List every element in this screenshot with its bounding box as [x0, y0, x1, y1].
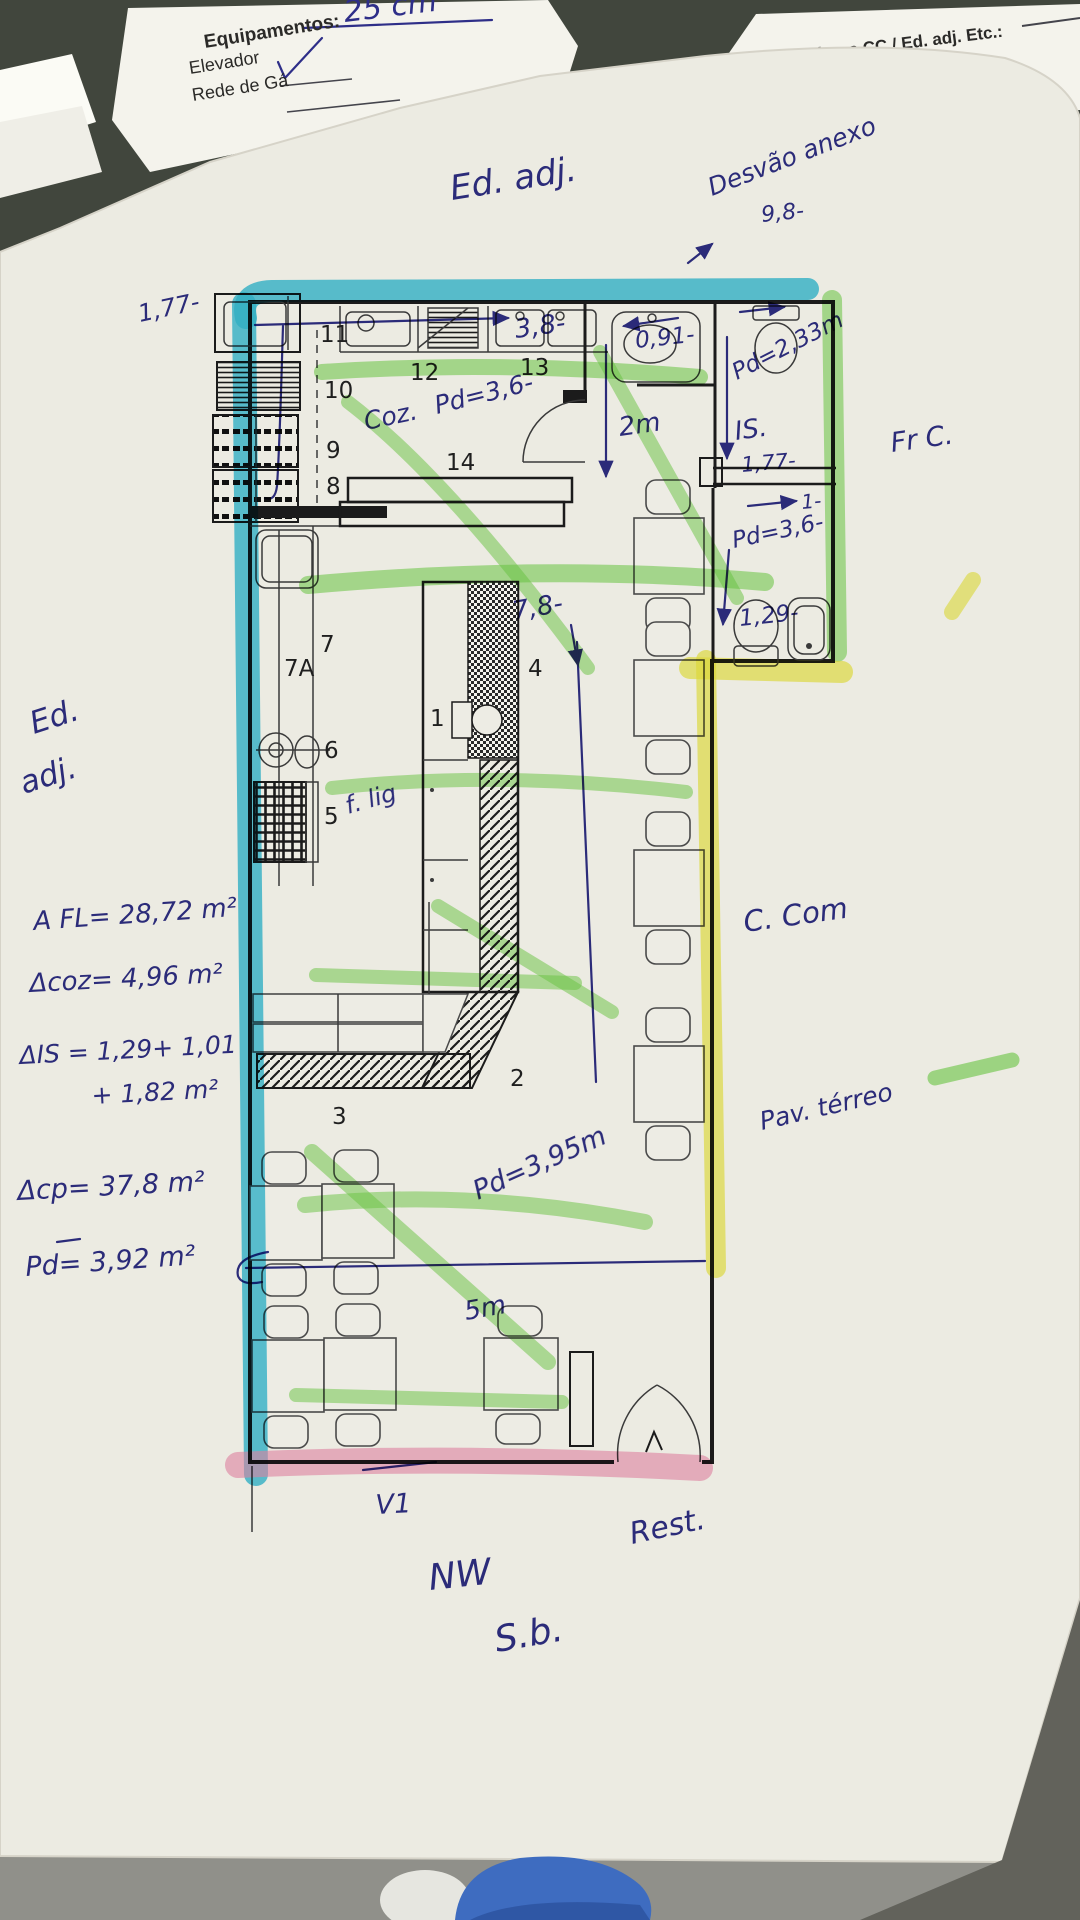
dim-2m: 2m	[617, 407, 663, 443]
dim-1-77-is: 1,77-	[740, 448, 796, 477]
room-label-7: 7	[320, 632, 335, 658]
annotation-v1: V1	[375, 1488, 412, 1521]
annotation-nw: NW	[427, 1551, 495, 1598]
room-label-9: 9	[326, 438, 341, 464]
room-label-5: 5	[324, 804, 339, 830]
room-label-6: 6	[324, 738, 339, 764]
room-label-8: 8	[326, 474, 341, 500]
room-label-4: 4	[528, 656, 543, 682]
room-label-3: 3	[332, 1104, 347, 1130]
room-label-7a: 7A	[284, 656, 315, 682]
room-label-14: 14	[446, 450, 475, 476]
annotation-is: IS.	[733, 413, 769, 447]
room-label-2: 2	[510, 1066, 525, 1092]
photo-of-annotated-floor-plan: 25 cm Equipamentos: Elevador Rede de Gá …	[0, 0, 1080, 1920]
dim-9-8: 9,8-	[760, 199, 805, 228]
room-label-11: 11	[320, 322, 349, 348]
room-label-1: 1	[430, 706, 445, 732]
